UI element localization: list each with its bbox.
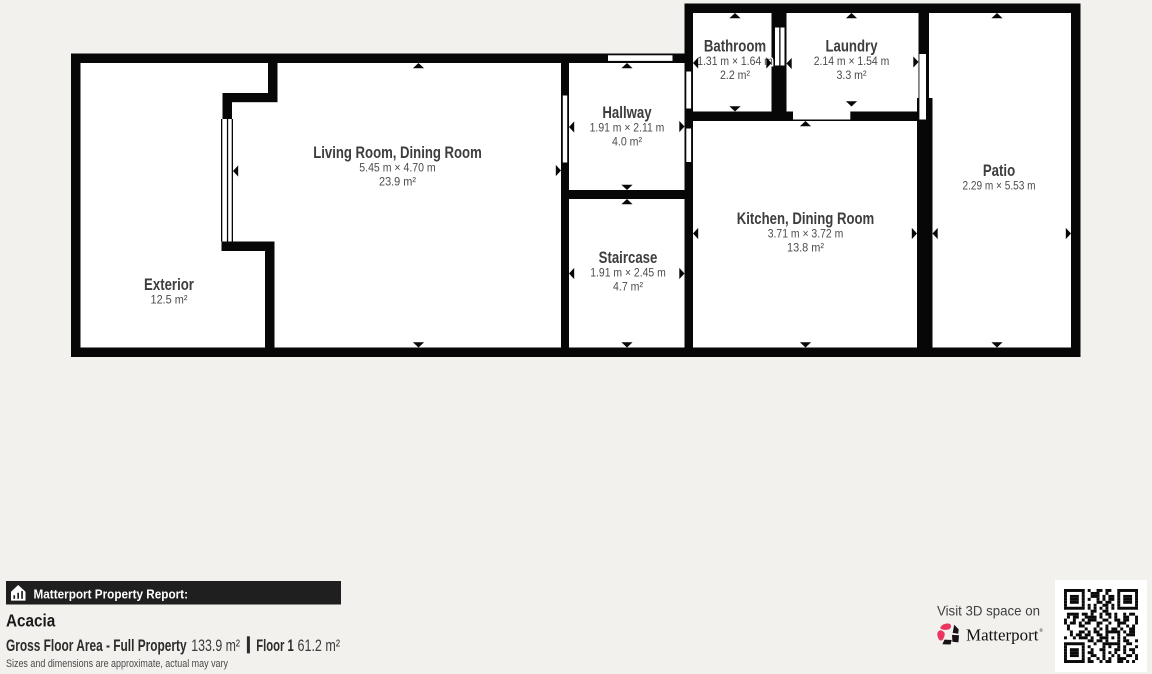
svg-text:23.9 m²: 23.9 m² xyxy=(379,174,416,188)
svg-text:1.31 m × 1.64 m: 1.31 m × 1.64 m xyxy=(697,54,773,68)
svg-text:Hallway: Hallway xyxy=(602,104,652,122)
svg-text:13.8 m²: 13.8 m² xyxy=(787,240,824,254)
svg-text:Patio: Patio xyxy=(983,162,1015,180)
svg-text:133.9 m²: 133.9 m² xyxy=(191,636,240,655)
svg-text:Living Room, Dining Room: Living Room, Dining Room xyxy=(313,144,482,162)
svg-text:5.45 m × 4.70 m: 5.45 m × 4.70 m xyxy=(359,161,435,175)
svg-text:1.91 m × 2.11 m: 1.91 m × 2.11 m xyxy=(590,121,665,135)
svg-text:Gross Floor Area - Full Proper: Gross Floor Area - Full Property xyxy=(6,636,187,655)
svg-text:Kitchen, Dining Room: Kitchen, Dining Room xyxy=(737,210,875,228)
svg-text:Staircase: Staircase xyxy=(599,249,658,267)
svg-text:4.0 m²: 4.0 m² xyxy=(612,134,642,148)
svg-text:Floor 1: Floor 1 xyxy=(256,636,294,655)
svg-text:12.5 m²: 12.5 m² xyxy=(151,293,188,307)
svg-text:Acacia: Acacia xyxy=(6,611,56,631)
svg-text:2.29 m × 5.53 m: 2.29 m × 5.53 m xyxy=(963,179,1036,193)
svg-text:Matterport Property Report:: Matterport Property Report: xyxy=(34,586,189,601)
svg-text:Visit 3D space on: Visit 3D space on xyxy=(937,603,1040,619)
svg-text:1.91 m × 2.45 m: 1.91 m × 2.45 m xyxy=(590,266,666,280)
svg-text:®: ® xyxy=(1039,628,1043,634)
svg-text:Laundry: Laundry xyxy=(825,38,878,56)
svg-text:4.7 m²: 4.7 m² xyxy=(613,279,643,293)
svg-text:3.71 m × 3.72 m: 3.71 m × 3.72 m xyxy=(768,227,844,241)
svg-text:Matterport: Matterport xyxy=(966,625,1039,644)
svg-text:Exterior: Exterior xyxy=(144,276,194,294)
svg-text:3.3 m²: 3.3 m² xyxy=(837,68,867,82)
svg-text:2.14 m × 1.54 m: 2.14 m × 1.54 m xyxy=(814,54,890,68)
svg-text:Bathroom: Bathroom xyxy=(704,38,766,56)
svg-text:61.2 m²: 61.2 m² xyxy=(298,636,341,655)
svg-text:2.2 m²: 2.2 m² xyxy=(720,68,750,82)
svg-text:Sizes and dimensions are appro: Sizes and dimensions are approximate, ac… xyxy=(6,658,228,670)
